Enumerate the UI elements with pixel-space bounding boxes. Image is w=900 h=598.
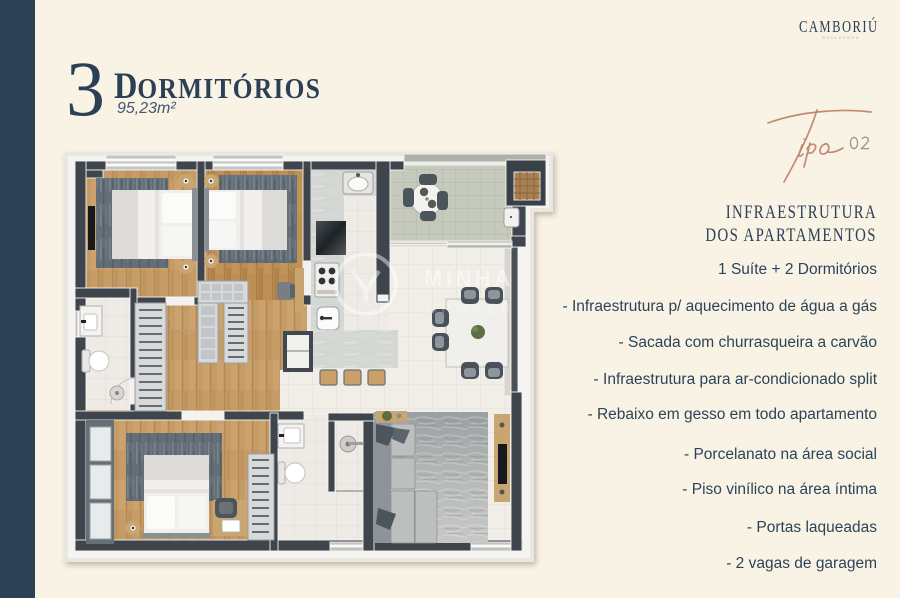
svg-text:BROKER: BROKER (427, 300, 516, 316)
svg-text:MINHA: MINHA (424, 266, 514, 291)
